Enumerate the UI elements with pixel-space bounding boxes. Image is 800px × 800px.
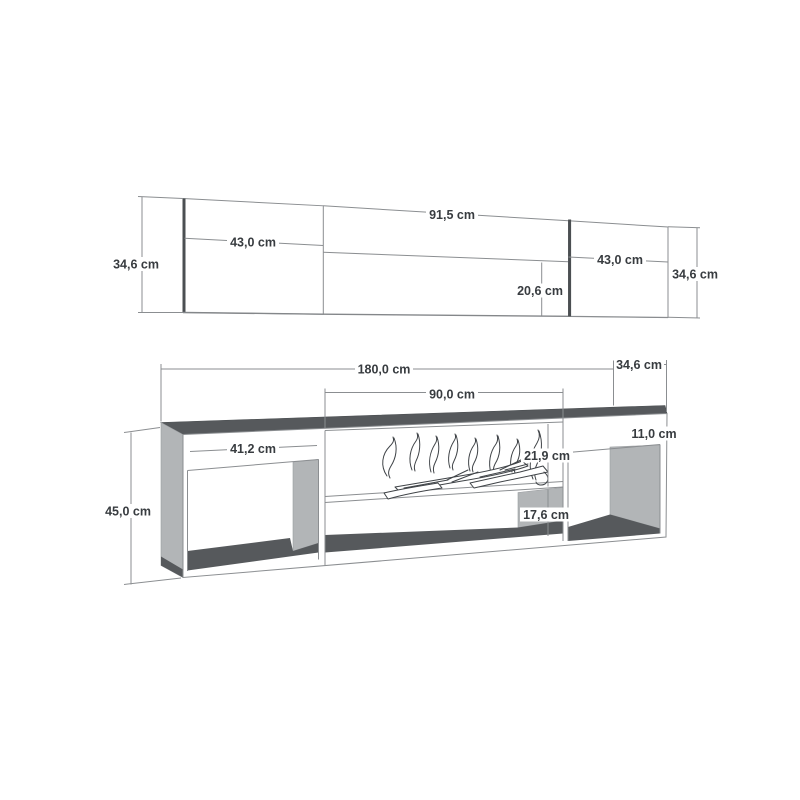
left-compartment-divider-panel (293, 460, 319, 552)
dim-panel-right-height-label: 34,6 cm (672, 268, 718, 282)
tick (668, 227, 700, 228)
dim-panel-left-width-label: 43,0 cm (230, 236, 276, 250)
diagram-svg: 34,6 cm 43,0 cm 91,5 cm 20,6 cm 43,0 cm … (0, 0, 800, 800)
tick (124, 428, 160, 433)
furniture-dimension-diagram: 34,6 cm 43,0 cm 91,5 cm 20,6 cm 43,0 cm … (0, 0, 800, 800)
dim-shelf-height-label: 17,6 cm (523, 508, 569, 522)
dim-fireplace-width-label: 90,0 cm (429, 388, 475, 402)
dim-panel-middle-width-label: 91,5 cm (429, 208, 475, 222)
tv-stand: 180,0 cm 34,6 cm 90,0 cm 41,2 cm 11,0 cm… (102, 358, 680, 585)
wall-panel-middle-top-edge (323, 252, 568, 261)
dim-panel-middle-height-label: 20,6 cm (517, 284, 563, 298)
dim-firebox-height-label: 21,9 cm (524, 449, 570, 463)
right-compartment-back-panel (610, 445, 660, 529)
tv-stand-left-side (161, 423, 183, 578)
dim-stand-width-label: 180,0 cm (358, 363, 411, 377)
tick (124, 578, 181, 585)
wall-panel-right (569, 221, 669, 318)
tick (138, 197, 183, 199)
wall-panel-left (183, 199, 323, 315)
dim-stand-depth-label: 34,6 cm (616, 358, 662, 372)
dim-panel-side-height-label: 34,6 cm (113, 258, 159, 272)
dim-panel-right-width-label: 43,0 cm (597, 253, 643, 267)
dim-top-panel-height-label: 11,0 cm (631, 427, 676, 441)
wall-panel-set: 34,6 cm 43,0 cm 91,5 cm 20,6 cm 43,0 cm … (110, 197, 721, 319)
dim-left-compartment-width-label: 41,2 cm (230, 442, 276, 456)
dim-stand-height-label: 45,0 cm (105, 505, 151, 519)
tick (668, 317, 700, 318)
